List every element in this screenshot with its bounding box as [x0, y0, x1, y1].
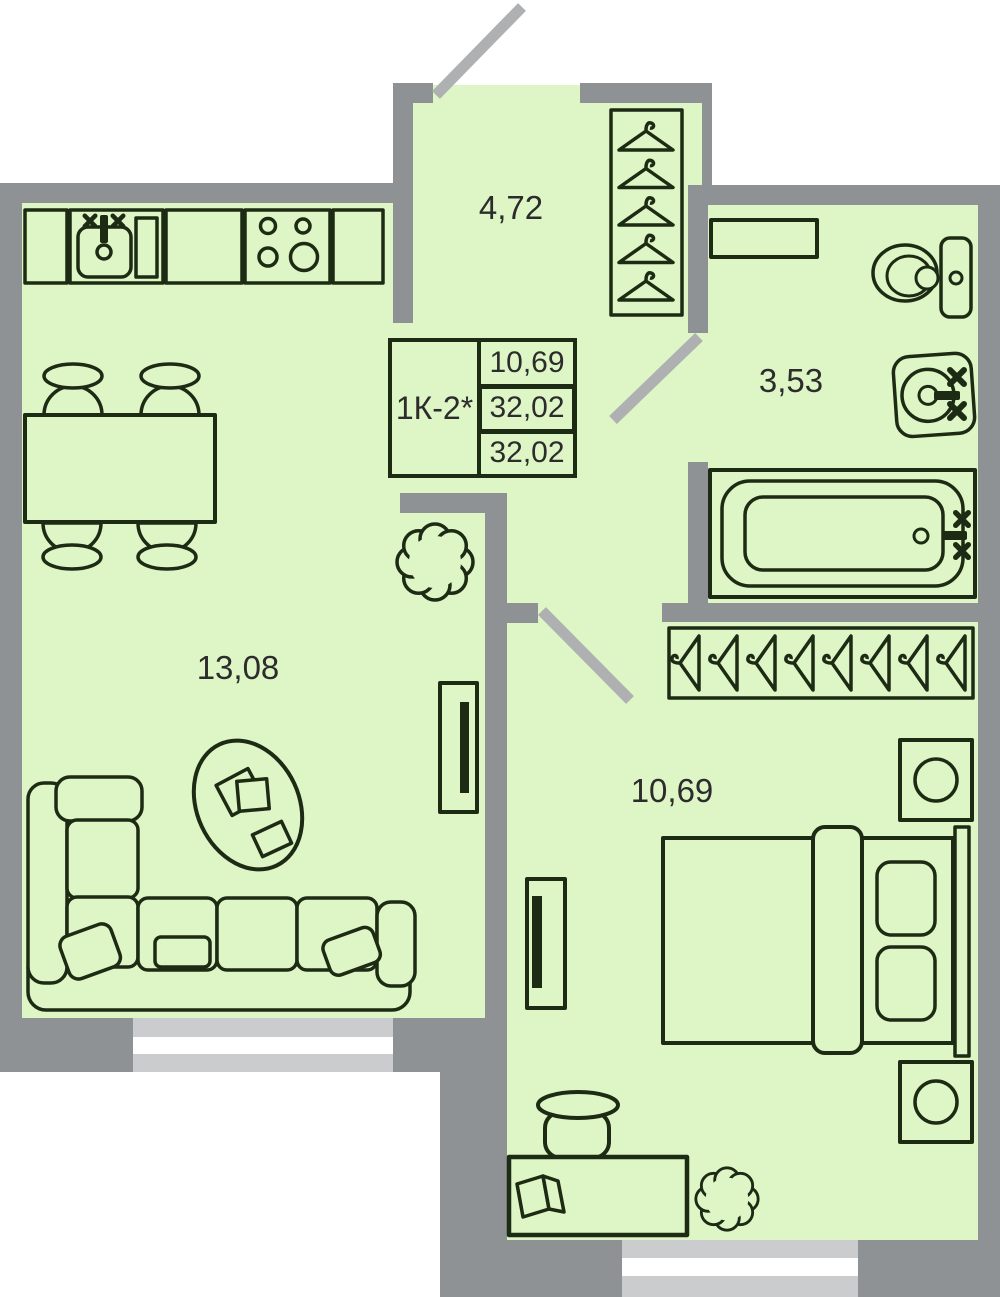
pillow-icon — [877, 947, 935, 1020]
bathtub-icon — [710, 470, 975, 597]
unit-total-area-2: 32,02 — [481, 432, 573, 474]
living-kitchen-area-label: 13,08 — [197, 649, 280, 687]
bedroom-area-label: 10,69 — [631, 772, 714, 810]
bathroom-door-icon — [613, 337, 699, 420]
unit-type-label: 1К-2* — [392, 342, 481, 474]
desk-chair-icon — [538, 1092, 618, 1158]
unit-areas: 10,69 32,02 32,02 — [481, 342, 573, 474]
entry-door-icon — [436, 7, 522, 95]
bedroom-door-icon — [542, 611, 630, 700]
floor-plan: 4,72 3,53 13,08 10,69 1К-2* 10,69 32,02 … — [0, 0, 1000, 1297]
book-icon — [517, 1176, 564, 1217]
tv-icon — [527, 879, 565, 1008]
nightstand-icon — [900, 1062, 972, 1142]
pillow-icon — [877, 862, 935, 935]
wardrobe-icon — [669, 628, 973, 698]
coffee-table-icon — [173, 723, 322, 888]
unit-info-box: 1К-2* 10,69 32,02 32,02 — [388, 338, 577, 478]
double-bed-icon — [663, 827, 969, 1056]
kitchen-sink-icon — [78, 215, 157, 277]
bathroom-area-label: 3,53 — [759, 362, 823, 400]
hallway-area-label: 4,72 — [479, 189, 543, 227]
dining-table-icon — [25, 415, 215, 522]
nightstand-icon — [900, 740, 972, 820]
tv-icon — [440, 683, 477, 812]
washbasin-icon — [892, 352, 975, 437]
plant-icon — [397, 524, 473, 600]
headboard — [955, 827, 969, 1056]
plant-icon — [696, 1168, 758, 1230]
blanket — [813, 827, 862, 1053]
unit-living-area: 10,69 — [481, 342, 573, 387]
toilet-icon — [873, 238, 971, 317]
closet-icon — [611, 110, 682, 315]
shelf-icon — [711, 220, 817, 257]
unit-total-area: 32,02 — [481, 387, 573, 432]
